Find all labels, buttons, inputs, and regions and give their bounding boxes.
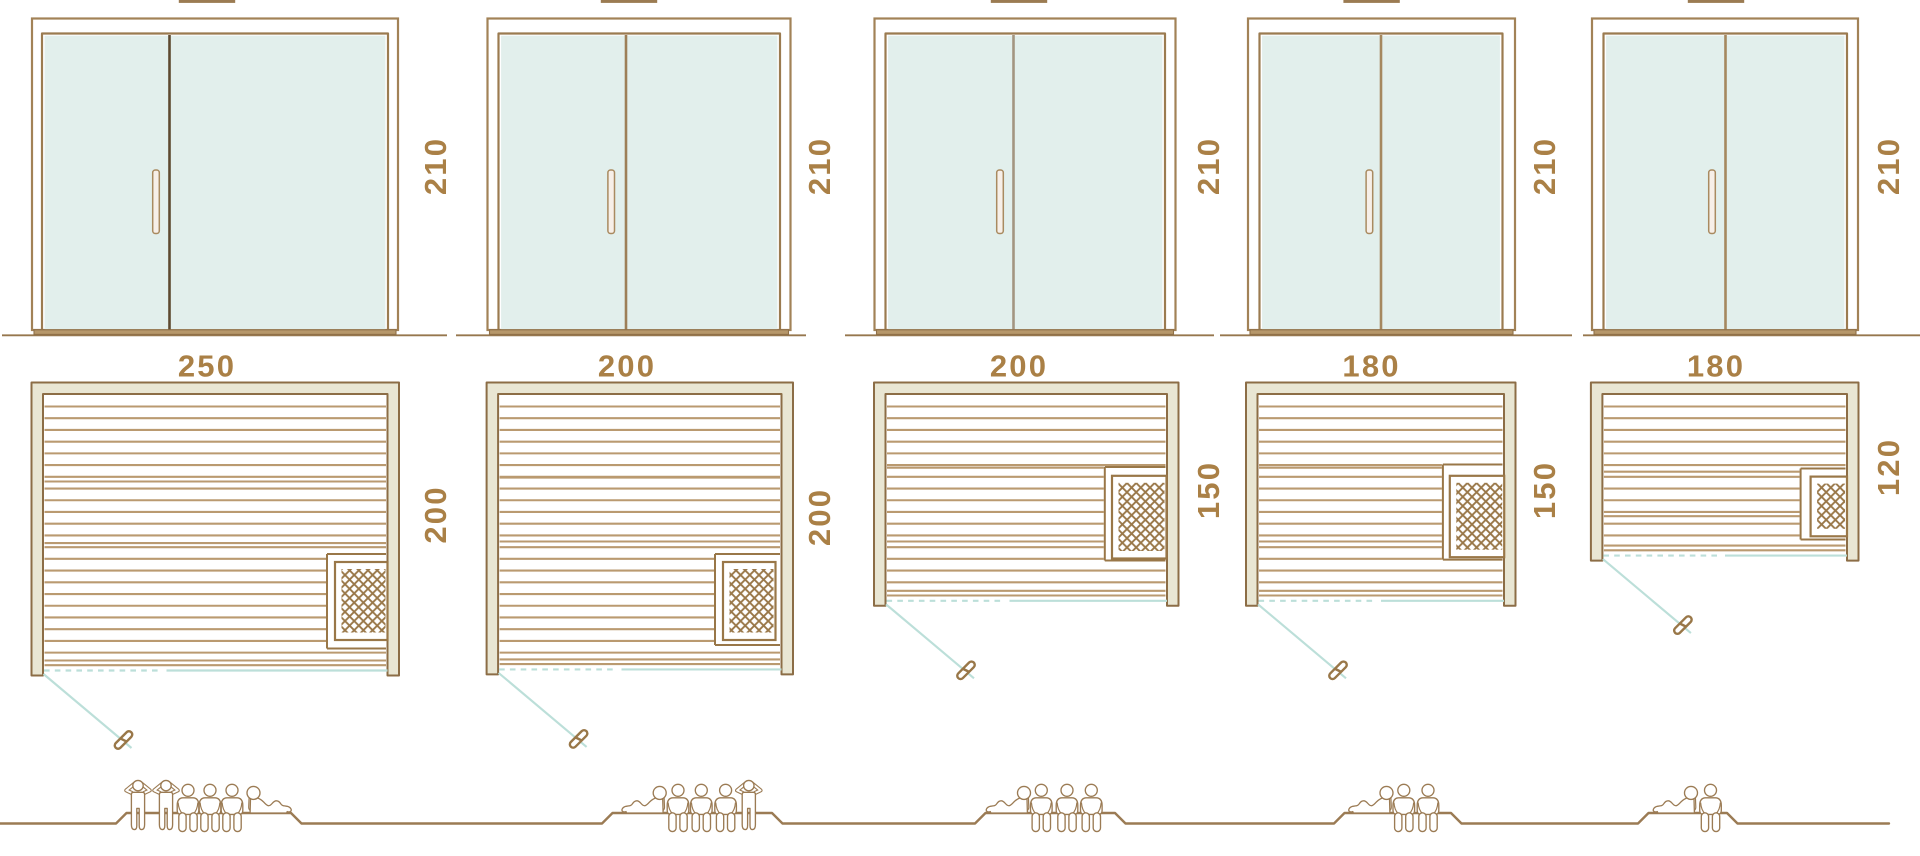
svg-text:200: 200 <box>598 349 656 384</box>
svg-text:210: 210 <box>1527 137 1562 195</box>
svg-text:180: 180 <box>1687 349 1745 384</box>
svg-text:200: 200 <box>802 488 837 546</box>
svg-text:120: 120 <box>1871 438 1906 496</box>
svg-text:180: 180 <box>1342 349 1400 384</box>
svg-text:200: 200 <box>990 349 1048 384</box>
svg-text:210: 210 <box>418 137 453 195</box>
svg-text:210: 210 <box>1191 137 1226 195</box>
svg-text:210: 210 <box>802 137 837 195</box>
svg-text:150: 150 <box>1191 461 1226 519</box>
svg-text:150: 150 <box>1527 461 1562 519</box>
svg-text:250: 250 <box>178 349 236 384</box>
svg-text:210: 210 <box>1871 137 1906 195</box>
svg-text:200: 200 <box>418 485 453 543</box>
